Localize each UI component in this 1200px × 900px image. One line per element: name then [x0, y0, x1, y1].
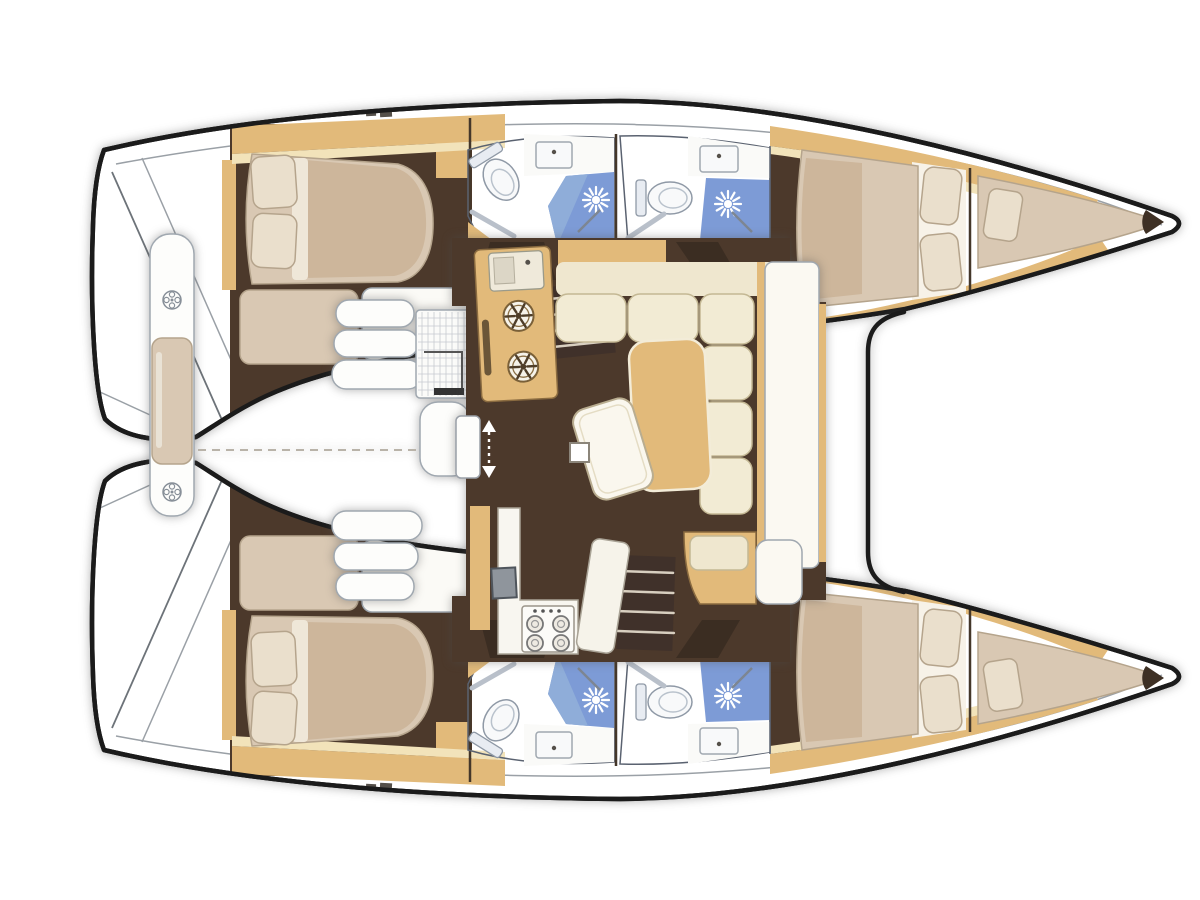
sofa-cushion: [628, 294, 698, 342]
floor-plan-svg: [0, 0, 1200, 900]
sofa-side-wood-outer: [819, 304, 826, 562]
galley-wall-strip: [470, 506, 490, 630]
sofa-backrest-band: [765, 262, 819, 568]
module-rail: [434, 388, 464, 395]
cockpit-rattan-module: [416, 310, 470, 398]
coachroof-front-edge: [868, 312, 904, 592]
cockpit-bench: [150, 234, 194, 516]
cockpit-steps-port: [332, 300, 422, 389]
sliding-door: [456, 416, 496, 478]
galley-hob-unit: [474, 246, 558, 402]
sofa-cushion: [556, 294, 626, 342]
sink-basin: [494, 257, 515, 284]
mast-post: [570, 443, 589, 462]
sofa-cushion-corner: [700, 294, 754, 344]
nav-seat-side: [756, 540, 802, 604]
catamaran-floor-plan: [0, 0, 1200, 900]
stove-4-burner: [522, 606, 574, 652]
nav-seat: [684, 532, 802, 604]
bench-cushion-seam: [156, 352, 162, 448]
sofa-side-wood: [757, 262, 765, 568]
nav-seat-cushion: [690, 536, 748, 570]
oven: [491, 567, 517, 598]
cockpit-steps-starboard: [332, 511, 422, 600]
